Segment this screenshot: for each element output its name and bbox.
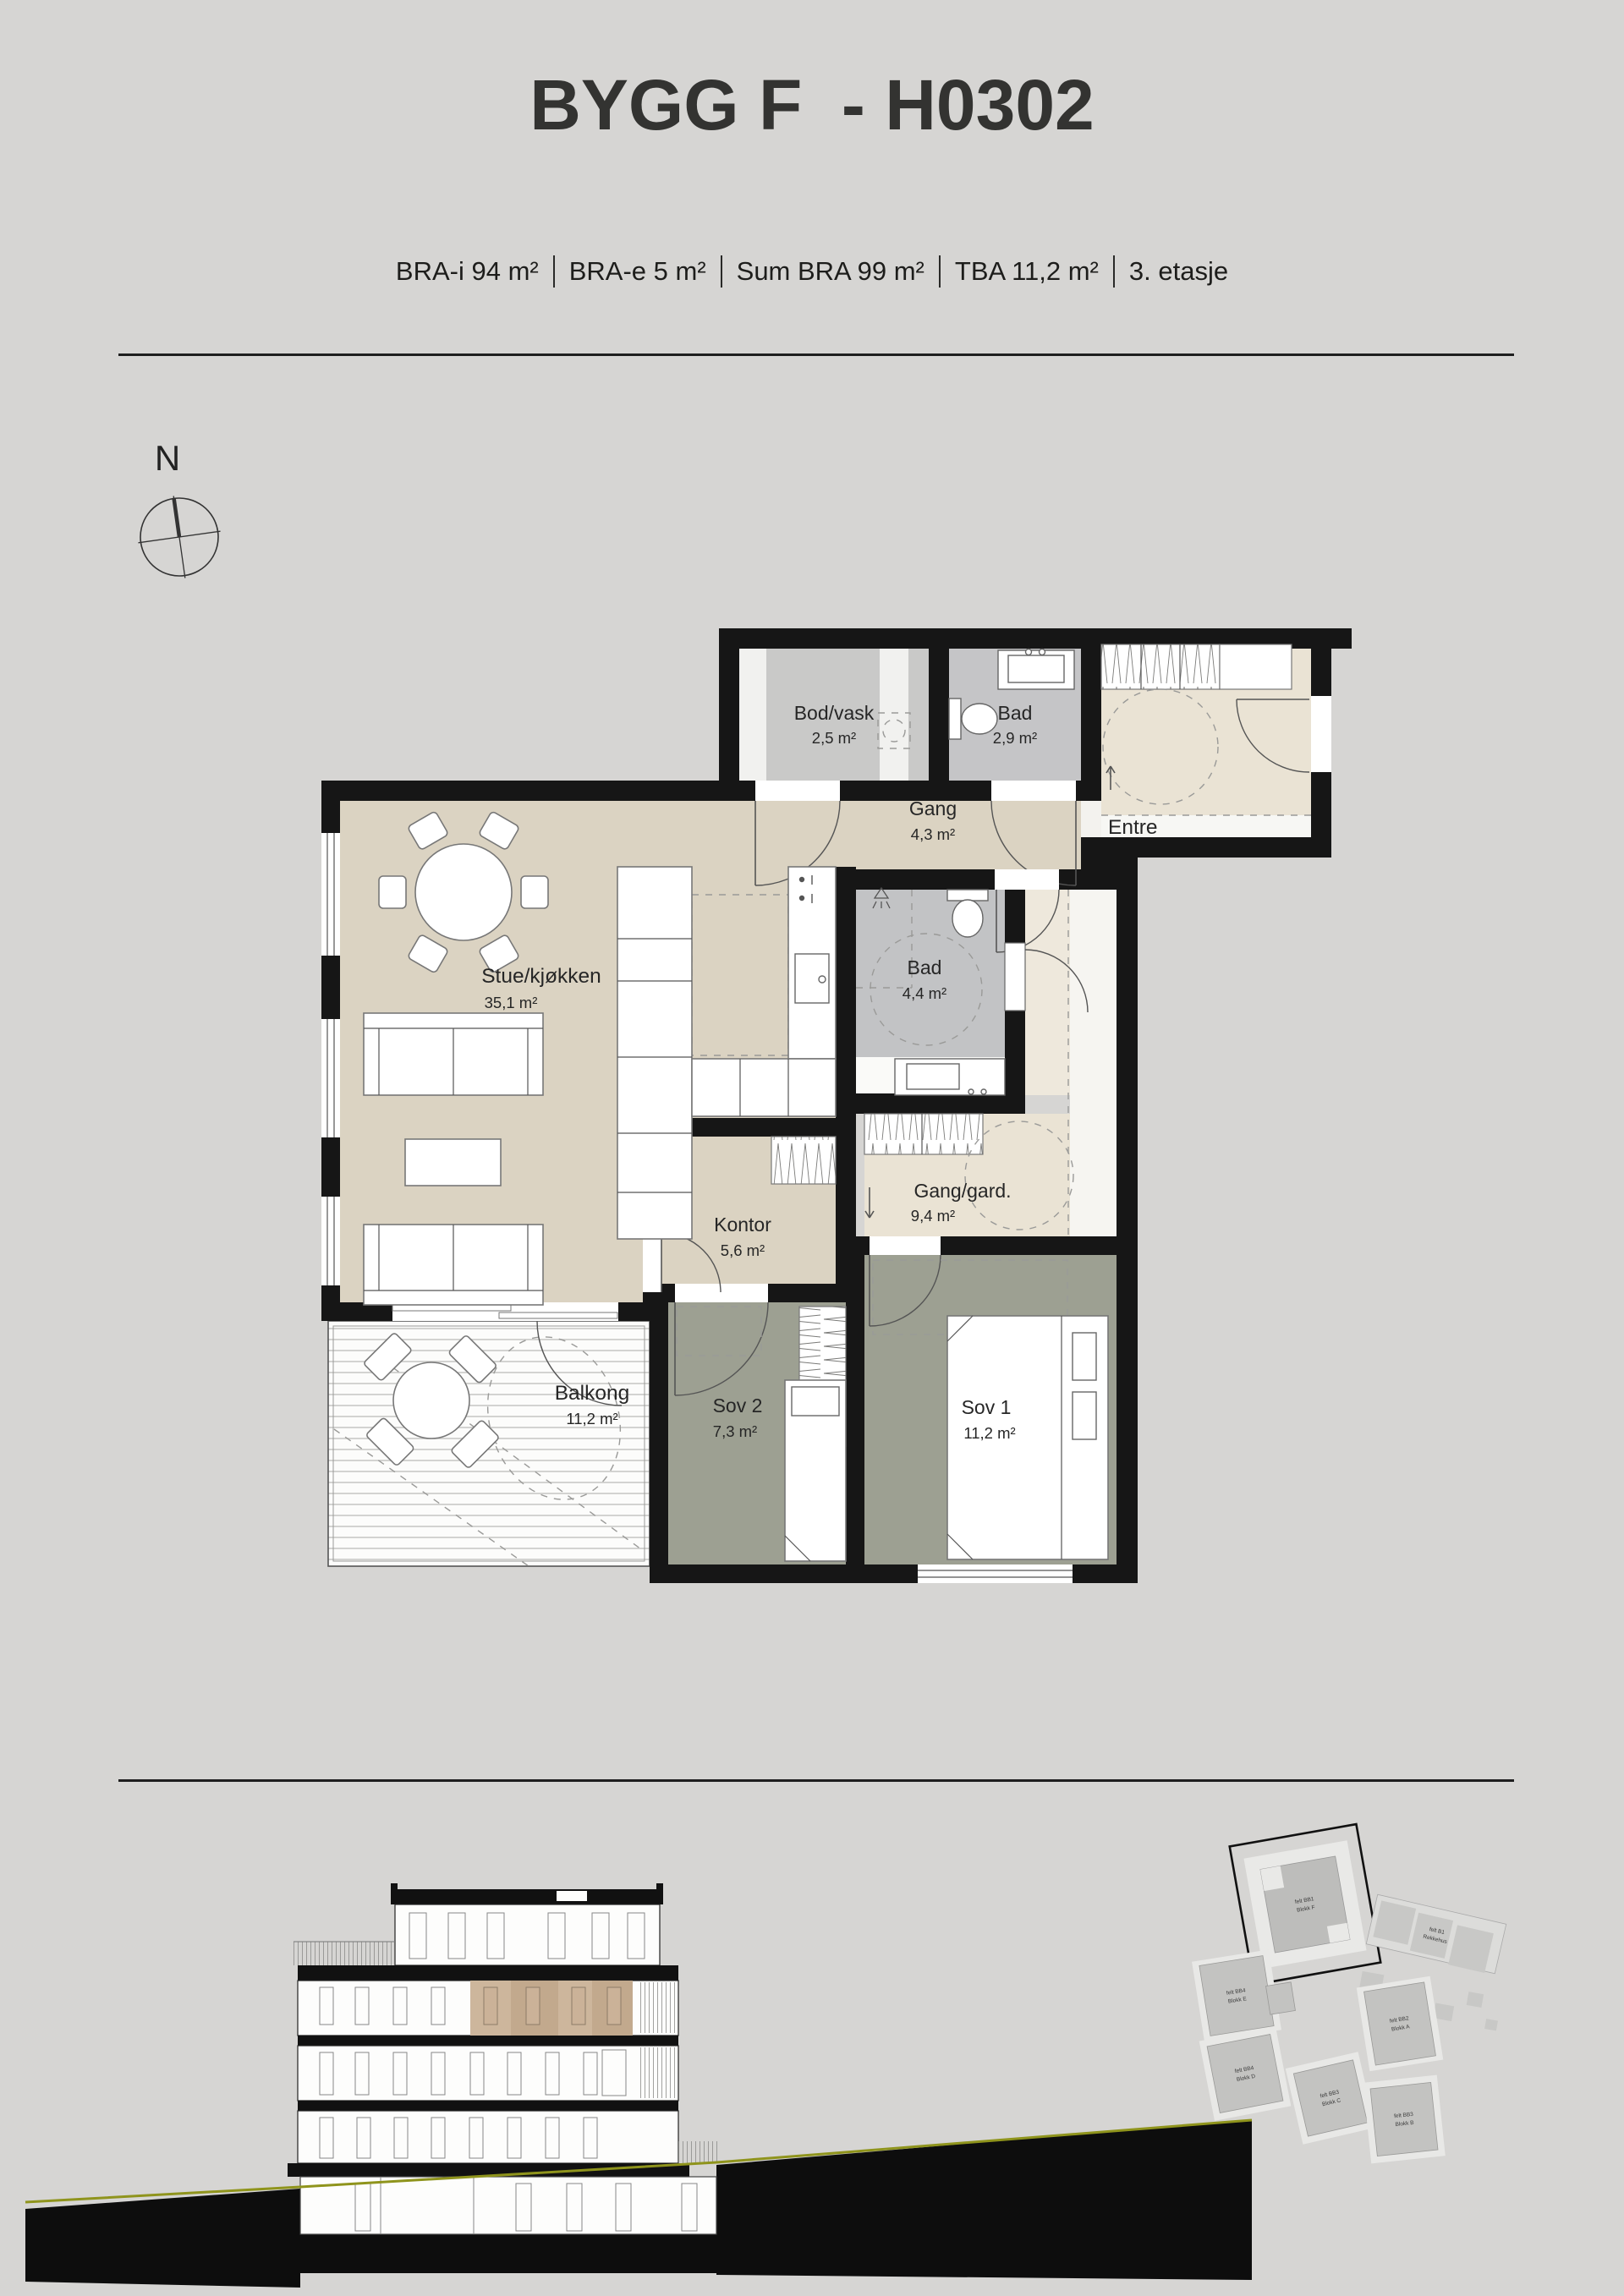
sink-icon — [998, 649, 1074, 690]
ground-right — [716, 2119, 1252, 2280]
storey-4 — [395, 1904, 660, 1965]
floor-corridor-strip — [1070, 890, 1116, 1236]
building-section — [25, 1883, 1252, 2288]
drawing-canvas: N — [0, 0, 1624, 2296]
ground-railing — [677, 2141, 719, 2163]
window — [321, 1019, 340, 1137]
balcony-railing — [639, 2047, 678, 2098]
room-label-sov1: Sov 1 — [962, 1396, 1012, 1418]
sofa — [364, 1013, 543, 1095]
wardrobe-entre — [1101, 644, 1220, 689]
site-block-rekkehus: felt B1 Rekkehus — [1366, 1894, 1506, 1975]
room-label-stue: Stue/kjøkken — [481, 965, 601, 988]
room-label-kontor: Kontor — [714, 1214, 771, 1236]
shelf-entre — [1220, 644, 1292, 689]
sofa — [364, 1225, 543, 1305]
room-label-bad-large: Bad — [908, 956, 942, 978]
floorplan-sheet: BYGG F - H0302 BRA-i 94 m² BRA-e 5 m² Su… — [0, 0, 1624, 2296]
single-bed — [785, 1380, 846, 1561]
vanity-icon — [895, 1059, 1005, 1095]
room-area-gang: 4,3 m² — [911, 825, 955, 843]
window — [321, 833, 340, 956]
kitchen-tall-cabinets — [617, 867, 692, 1239]
terrace-railing — [294, 1942, 395, 1965]
room-label-bod-vask: Bod/vask — [794, 702, 875, 724]
room-area-stue: 35,1 m² — [485, 994, 538, 1011]
room-area-bad-small: 2,9 m² — [993, 729, 1037, 747]
bod-shelf-left — [739, 649, 766, 782]
site-block-b: felt BB3 Blokk B — [1363, 2075, 1446, 2164]
north-arrow-icon: N — [133, 438, 227, 584]
site-annex — [1266, 1982, 1296, 2014]
wardrobe-kontor — [771, 1137, 836, 1184]
window — [918, 1564, 1073, 1583]
site-block-a: felt BB2 Blokk A — [1357, 1976, 1444, 2072]
room-area-kontor: 5,6 m² — [721, 1241, 765, 1259]
roof-band — [391, 1889, 663, 1904]
ground-left — [25, 2189, 300, 2288]
balcony-railing — [639, 1982, 678, 2033]
kitchen-island — [692, 1059, 836, 1116]
room-label-balkong: Balkong — [555, 1382, 630, 1405]
site-block-c: felt BB3 Blokk C — [1286, 2052, 1375, 2144]
room-area-balkong: 11,2 m² — [566, 1410, 617, 1427]
living-room-furniture — [364, 811, 548, 1305]
balcony — [328, 1297, 650, 1566]
storey-1 — [298, 2111, 678, 2163]
room-area-sov1: 11,2 m² — [963, 1424, 1015, 1442]
room-label-gang: Gang — [909, 797, 957, 819]
room-label-bad-small: Bad — [998, 702, 1033, 724]
north-label: N — [155, 438, 180, 478]
room-area-bod-vask: 2,5 m² — [812, 729, 856, 747]
room-label-gang-gard: Gang/gard. — [913, 1180, 1011, 1202]
room-label-sov2: Sov 2 — [713, 1395, 763, 1417]
window — [321, 1197, 340, 1285]
room-label-entre: Entre — [1108, 816, 1158, 839]
floor-slab — [298, 1965, 678, 1981]
room-area-bad-large: 4,4 m² — [903, 984, 946, 1002]
site-block-d: felt BB4 Blokk D — [1199, 2026, 1292, 2121]
site-plan: felt BB1 Blokk F felt B1 Rekkehus — [1192, 1824, 1506, 2163]
bod-shelf-right — [880, 649, 908, 782]
wardrobe-gang-gard — [864, 1114, 983, 1154]
room-area-gang-gard: 9,4 m² — [911, 1207, 955, 1225]
room-area-sov2: 7,3 m² — [713, 1422, 757, 1440]
coffee-table — [405, 1139, 501, 1186]
foundation — [292, 2234, 725, 2273]
floor-plan: Bod/vask 2,5 m² Bad 2,9 m² Entre Gang 4,… — [321, 628, 1352, 1583]
faucet-icon — [819, 976, 826, 983]
